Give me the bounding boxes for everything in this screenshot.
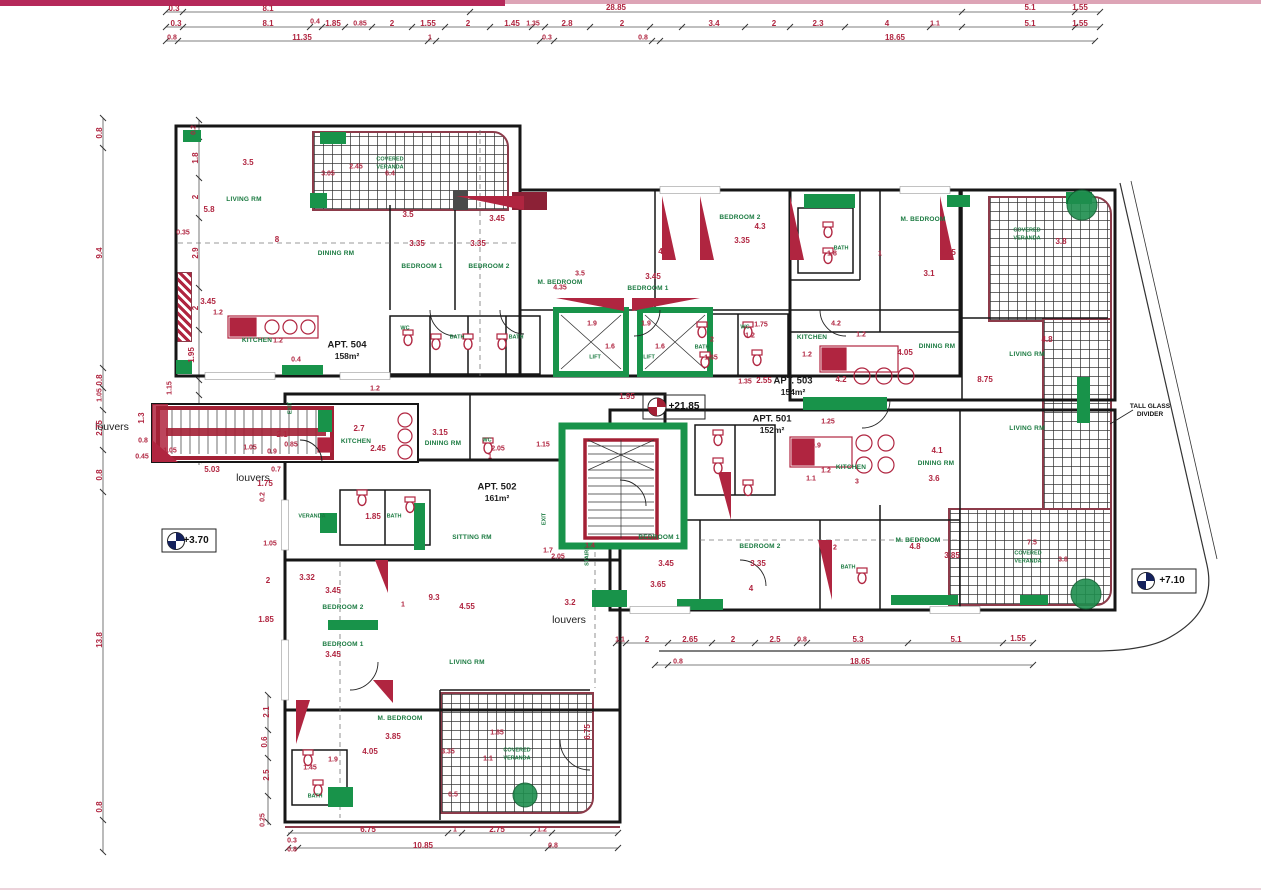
dimension-label: 2.3 (812, 20, 823, 28)
dimension-label: 3.32 (299, 574, 315, 582)
dimension-label: 3.45 (200, 298, 216, 306)
dimension-label: 4 (885, 20, 889, 28)
dimension-label: 18.65 (850, 658, 870, 666)
dimension-label: 1 (453, 827, 457, 834)
dimension-label: 2 (620, 20, 624, 28)
dimension-label: 2 (645, 636, 649, 644)
dimension-label: 0.2 (260, 492, 267, 502)
dimension-label: 4.05 (362, 748, 378, 756)
dimension-label: 1.55 (1010, 635, 1026, 643)
room-label: LIVING RM (226, 197, 261, 204)
dimension-label: 1.15 (536, 442, 550, 449)
dimension-label: 3.1 (923, 270, 934, 278)
dimension-label: 1.85 (258, 616, 274, 624)
room-label: BATH (509, 335, 524, 341)
room-label: BATH (308, 794, 323, 800)
apartment-label: APT. 503 (773, 376, 812, 386)
room-label: M. BEDROOM (378, 716, 423, 723)
room-label: WC (740, 325, 749, 331)
room-label: COVERED (503, 748, 530, 754)
room-label: COVERED (1014, 551, 1041, 557)
dimension-label: 1.9 (328, 757, 338, 764)
apartment-label: APT. 501 (752, 414, 791, 424)
dimension-label: 9.4 (96, 247, 104, 258)
dimension-label: 4.55 (459, 603, 475, 611)
dimension-label: 3.45 (658, 560, 674, 568)
room-label: WC (400, 326, 409, 332)
elevation-label: +3.70 (183, 536, 208, 546)
apartment-area-label: 154m² (781, 388, 806, 397)
dimension-label: 3.35 (441, 749, 455, 756)
dimension-label: 0.7 (271, 467, 281, 474)
dimension-label: 3.85 (944, 552, 960, 560)
room-label: BEDROOM 2 (739, 544, 780, 551)
dimension-label: 1 (401, 602, 405, 609)
dimension-label: 3.45 (325, 651, 341, 659)
dimension-label: 0.8 (96, 374, 104, 385)
room-label: WC (482, 438, 491, 444)
dimension-label: 0.2 (191, 125, 198, 135)
room-label: VERANDA (298, 514, 325, 520)
dimension-label: 5.1 (1024, 4, 1035, 12)
dimension-label: 4.1 (931, 447, 942, 455)
dimension-label: 3.35 (409, 240, 425, 248)
dimension-label: 6.4 (385, 171, 395, 178)
room-label: KITCHEN (341, 439, 371, 446)
room-label: LIVING RM (1009, 352, 1044, 359)
dimension-label: 4.45 (940, 249, 956, 257)
dimension-label: 3.4 (708, 20, 719, 28)
dimension-label: 1.35 (738, 379, 752, 386)
dimension-label: 4.35 (553, 285, 567, 292)
dimension-label: 4.3 (754, 223, 765, 231)
dimension-label: 6.75 (360, 826, 376, 834)
dimension-label: 0.8 (96, 469, 104, 480)
dimension-label: 4.35 (658, 248, 674, 256)
room-label: VERANDA (503, 756, 530, 762)
dimension-label: 0.8 (797, 637, 807, 644)
dimension-label: 2.5 (769, 636, 780, 644)
room-label: KITCHEN (836, 465, 866, 472)
dimension-label: 0.85 (353, 21, 367, 28)
dimension-label: 1.65 (704, 355, 718, 362)
dimension-label: 3.2 (564, 599, 575, 607)
dimension-label: 4 (749, 585, 753, 593)
dimension-label: 3.5 (242, 159, 253, 167)
apartment-area-label: 152m² (760, 426, 785, 435)
elevation-label: +21.85 (669, 402, 700, 412)
dimension-label: 2.1 (276, 431, 287, 439)
room-label: BEDROOM 1 (638, 535, 679, 542)
dimension-label: 1.05 (243, 445, 257, 452)
dimension-label: 1.85 (325, 20, 341, 28)
dimension-label: 1.2 (745, 333, 755, 340)
dimension-label: 0.9 (267, 449, 277, 456)
dimension-label: 1.15 (167, 381, 174, 395)
dimension-label: 1.3 (138, 412, 146, 423)
dimension-label: 2.45 (349, 164, 363, 171)
dimension-label: 0.8 (287, 847, 297, 854)
dimension-label: 3.5 (575, 271, 585, 278)
dimension-label: 2.75 (489, 826, 505, 834)
dimension-label: 1.45 (303, 765, 317, 772)
dimension-label: 5.1 (950, 636, 961, 644)
dimension-label: 2.75 (96, 420, 104, 436)
dimension-label: 1.95 (619, 393, 635, 401)
dimension-label: 1.95 (188, 347, 196, 363)
dimension-label: 0.6 (261, 736, 269, 747)
dimension-label: 0.35 (176, 230, 190, 237)
dimension-label: 1.8 (192, 152, 200, 163)
dimension-label: 8.1 (262, 5, 273, 13)
apartment-area-label: 161m² (485, 494, 510, 503)
dimension-label: 1.55 (1072, 20, 1088, 28)
dimension-label: 1.2 (273, 338, 283, 345)
dimension-label: 0.9 (811, 443, 821, 450)
dimension-label: 3.35 (734, 237, 750, 245)
dimension-label: 1.6 (655, 344, 665, 351)
dimension-label: 0.8 (673, 659, 683, 666)
dimension-label: 1.2 (821, 468, 831, 475)
room-label: LIFT (643, 355, 655, 361)
dimension-label: 3.35 (750, 560, 766, 568)
annotation-label: DIVIDER (1137, 412, 1163, 419)
dimension-label: 1.55 (420, 20, 436, 28)
dimension-label: 2 (266, 577, 270, 585)
dimension-label: 0.8 (167, 35, 177, 42)
dimension-label: 3.45 (489, 215, 505, 223)
dimension-label: 3.8 (1055, 238, 1066, 246)
dimension-label: 3.8 (1058, 557, 1068, 564)
dimension-label: 3.45 (645, 273, 661, 281)
dimension-label: 4.2 (835, 376, 846, 384)
dimension-label: 7.5 (1027, 540, 1037, 547)
dimension-label: 2 (390, 20, 394, 28)
room-label: BEDROOM 2 (322, 605, 363, 612)
dimension-label: 2.8 (561, 20, 572, 28)
dimension-label: 2.65 (682, 636, 698, 644)
dimension-label: 8.75 (977, 376, 993, 384)
louvers-label: louvers (552, 615, 586, 626)
dimension-label: 5.03 (204, 466, 220, 474)
room-label: BATH (841, 565, 856, 571)
room-label: EXIT (542, 513, 548, 525)
dimension-label: 1.2 (537, 827, 547, 834)
dimension-label: 0.8 (138, 438, 148, 445)
dimension-label: 2 (772, 20, 776, 28)
dimension-label: 0.3 (168, 5, 179, 13)
dimension-label: 1.6 (605, 344, 615, 351)
dimension-label: 1.2 (856, 332, 866, 339)
dimension-label: 1.05 (163, 448, 177, 455)
elevation-label: +7.10 (1159, 576, 1184, 586)
dimension-label: 1.9 (641, 321, 651, 328)
room-label: BEDROOM 1 (627, 286, 668, 293)
dimension-label: 3.65 (650, 581, 666, 589)
dimension-label: 3 (855, 479, 859, 486)
dimension-label: 11.35 (292, 34, 312, 42)
dimension-label: 1.75 (754, 322, 768, 329)
room-label: BEDROOM 1 (322, 642, 363, 649)
dimension-label: 1.05 (97, 388, 104, 402)
floor-plan-labels: LIVING RMDINING RMKITCHENBEDROOM 1BEDROO… (0, 0, 1261, 892)
dimension-label: 1 (878, 251, 882, 258)
dimension-label: 0.8 (638, 35, 648, 42)
dimension-label: 2.45 (370, 445, 386, 453)
room-label: DINING RM (425, 441, 461, 448)
dimension-label: 1.1 (930, 21, 940, 28)
room-label: BEDROOM 2 (719, 215, 760, 222)
dimension-label: 1.35 (526, 21, 540, 28)
dimension-label: 28.85 (606, 4, 626, 12)
dimension-label: 2.9 (192, 247, 200, 258)
room-label: BATH (450, 335, 465, 341)
dimension-label: 1.2 (213, 310, 223, 317)
dimension-label: 0.45 (135, 454, 149, 461)
apartment-label: APT. 504 (327, 340, 366, 350)
apartment-area-label: 158m² (335, 352, 360, 361)
room-label: LIVING RM (1009, 426, 1044, 433)
room-label: COVERED (1013, 228, 1040, 234)
dimension-label: 1.4 (585, 543, 595, 550)
dimension-label: 4.8 (909, 543, 920, 551)
dimension-label: 3.6 (928, 475, 939, 483)
dimension-label: 4.05 (897, 349, 913, 357)
dimension-label: 2 (710, 337, 714, 344)
dimension-label: 3.45 (325, 587, 341, 595)
dimension-label: 3.85 (385, 733, 401, 741)
dimension-label: 2.05 (491, 446, 505, 453)
room-label: BEDROOM 2 (468, 264, 509, 271)
room-label: EXIT (288, 402, 294, 414)
dimension-label: 10.85 (413, 842, 433, 850)
room-label: KITCHEN (242, 338, 272, 345)
dimension-label: 1.25 (821, 419, 835, 426)
dimension-label: 0.8 (548, 843, 558, 850)
dimension-label: 5.1 (1024, 20, 1035, 28)
room-label: LIFT (589, 355, 601, 361)
room-label: DINING RM (919, 344, 955, 351)
room-label: BEDROOM 1 (401, 264, 442, 271)
dimension-label: 2 (833, 545, 837, 552)
annotation-label: TALL GLASS (1130, 404, 1170, 411)
dimension-label: 9.3 (428, 594, 439, 602)
dimension-label: 1.75 (257, 480, 273, 488)
dimension-label: 0.4 (291, 357, 301, 364)
dimension-label: 2 (466, 20, 470, 28)
dimension-label: 1.45 (504, 20, 520, 28)
room-label: LIVING RM (449, 660, 484, 667)
dimension-label: 2.55 (756, 377, 772, 385)
dimension-label: 0.25 (260, 813, 267, 827)
room-label: BATH (387, 514, 402, 520)
dimension-label: 1.8 (827, 251, 837, 258)
dimension-label: 3.05 (321, 171, 335, 178)
dimension-label: 8 (275, 236, 279, 244)
dimension-label: 0.8 (96, 801, 104, 812)
dimension-label: 0.3 (542, 35, 552, 42)
dimension-label: 0.85 (284, 442, 298, 449)
dimension-label: 3.15 (432, 429, 448, 437)
room-label: SITTING RM (452, 535, 492, 542)
floor-plan-sheet: LIVING RMDINING RMKITCHENBEDROOM 1BEDROO… (0, 0, 1261, 892)
room-label: COVERED (376, 157, 403, 163)
dimension-label: 0.8 (96, 127, 104, 138)
dimension-label: 0.3 (170, 20, 181, 28)
room-label: VERANDA (1014, 559, 1041, 565)
room-label: DINING RM (318, 251, 354, 258)
dimension-label: 1.2 (802, 352, 812, 359)
dimension-label: 2.05 (551, 554, 565, 561)
dimension-label: 1.05 (263, 541, 277, 548)
apartment-label: APT. 502 (477, 482, 516, 492)
dimension-label: 1.85 (365, 513, 381, 521)
dimension-label: 5.3 (852, 636, 863, 644)
dimension-label: 1.1 (483, 756, 493, 763)
dimension-label: 2.7 (353, 425, 364, 433)
dimension-label: 18.65 (885, 34, 905, 42)
dimension-label: 2.1 (263, 706, 271, 717)
dimension-label: 1 (488, 454, 492, 461)
dimension-label: 1 (428, 35, 432, 42)
room-label: DINING RM (918, 461, 954, 468)
dimension-label: 8.1 (262, 20, 273, 28)
dimension-label: 2 (192, 306, 200, 310)
dimension-label: 1.85 (490, 730, 504, 737)
dimension-label: 4.2 (831, 321, 841, 328)
dimension-label: 4.8 (1041, 336, 1052, 344)
dimension-label: 2 (731, 636, 735, 644)
dimension-label: 3.5 (402, 211, 413, 219)
room-label: M. BEDROOM (901, 217, 946, 224)
room-label: KITCHEN (797, 335, 827, 342)
room-label: BATH (695, 345, 710, 351)
dimension-label: 6.75 (584, 724, 592, 740)
dimension-label: 1.1 (806, 476, 816, 483)
dimension-label: 2 (192, 195, 200, 199)
dimension-label: 1.55 (1072, 4, 1088, 12)
room-label: VERANDA (1013, 236, 1040, 242)
dimension-label: 13.8 (96, 632, 104, 648)
dimension-label: 5.8 (203, 206, 214, 214)
dimension-label: 1.1 (615, 637, 625, 644)
dimension-label: 0.3 (287, 838, 297, 845)
dimension-label: 3.35 (470, 240, 486, 248)
dimension-label: 1.9 (587, 321, 597, 328)
dimension-label: 2.5 (263, 769, 271, 780)
dimension-label: 0.4 (310, 19, 320, 26)
dimension-label: 1.2 (370, 386, 380, 393)
dimension-label: 0.5 (448, 792, 458, 799)
